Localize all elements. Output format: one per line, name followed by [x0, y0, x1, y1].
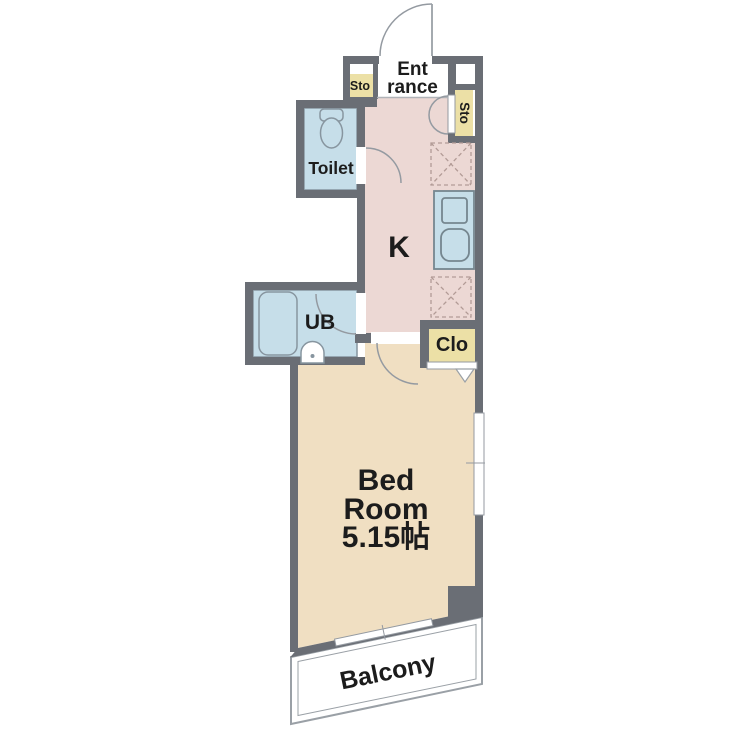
bathtub-icon: [259, 292, 297, 355]
kitchen-stove-icon: [442, 198, 467, 223]
storage-right-door: [448, 95, 455, 133]
unit-bath-label: UB: [300, 311, 340, 335]
toilet-label: Toilet: [300, 158, 362, 179]
entrance-door-swing: [380, 4, 432, 56]
closet-label: Clo: [429, 334, 475, 357]
entrance-label-line1: Ent: [377, 61, 448, 79]
bedroom-size: 5.15帖: [311, 524, 461, 553]
bedroom-label: Bed Room 5.15帖: [311, 467, 461, 553]
bedroom-label-line2: Room: [311, 496, 461, 525]
entrance-label: Ent rance: [377, 61, 448, 96]
pipe-space: [456, 64, 475, 84]
floor-plan: Ent rance Sto Sto Toilet K UB Clo Bed Ro…: [0, 0, 734, 734]
unit-bath-door-opening: [356, 293, 366, 334]
bedroom-label-line1: Bed: [311, 467, 461, 496]
floor-plan-drawing: [0, 0, 734, 734]
kitchen-sink-icon: [441, 229, 469, 261]
toilet-bowl-icon: [321, 118, 343, 148]
bath-sink-icon: [301, 342, 324, 364]
bath-sink-drain-icon: [311, 354, 315, 358]
storage-left-label: Sto: [346, 74, 374, 99]
kitchen-label: K: [384, 231, 414, 265]
storage-right-label: Sto: [455, 86, 473, 140]
closet-sliding-door: [427, 362, 477, 369]
entrance-label-line2: rance: [377, 79, 448, 97]
entry-niche: [350, 64, 374, 74]
bedroom-door-opening: [371, 332, 420, 344]
